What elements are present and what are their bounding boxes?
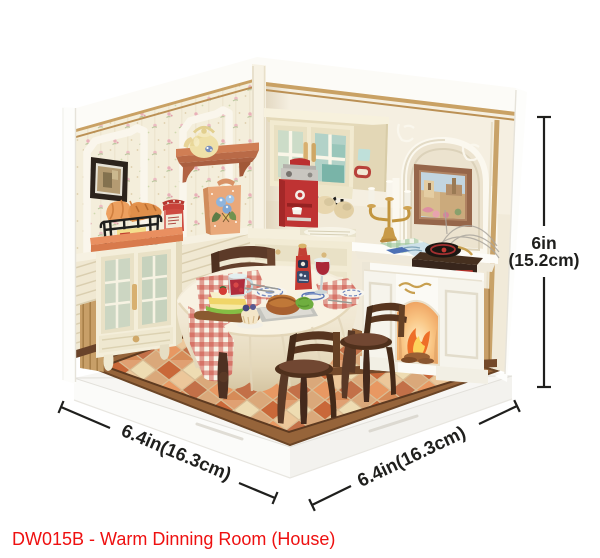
svg-text:DW015B - Warm Dinning Room (Ho: DW015B - Warm Dinning Room (House) (12, 529, 335, 549)
svg-text:(15.2cm): (15.2cm) (508, 250, 579, 270)
